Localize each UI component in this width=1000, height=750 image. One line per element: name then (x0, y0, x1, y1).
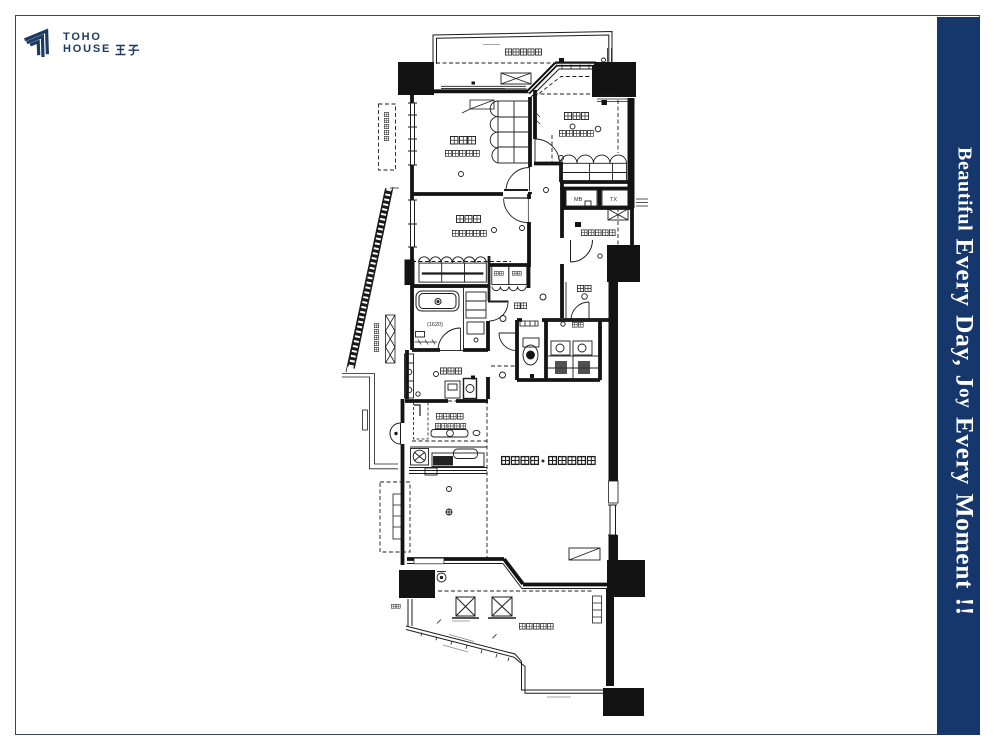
svg-text:(1620): (1620) (427, 322, 443, 328)
svg-text:TX: TX (610, 197, 617, 203)
svg-text:MB: MB (574, 197, 583, 203)
